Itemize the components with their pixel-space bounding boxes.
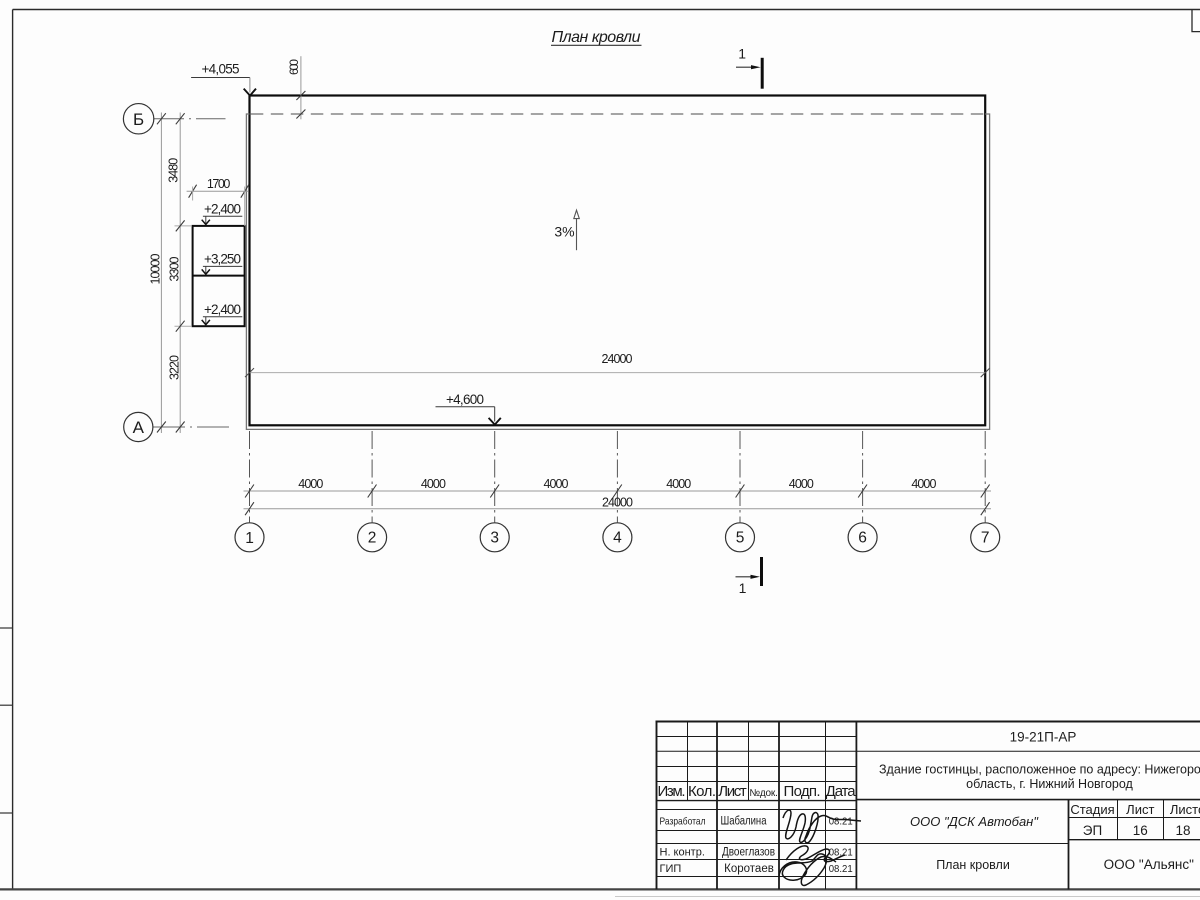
svg-text:Стадия: Стадия: [1070, 802, 1114, 817]
svg-text:18: 18: [1175, 823, 1190, 838]
svg-text:Б: Б: [133, 110, 144, 129]
svg-text:600: 600: [287, 59, 301, 75]
svg-text:Коротаев: Коротаев: [724, 863, 774, 875]
svg-text:+3,250: +3,250: [204, 252, 241, 267]
svg-text:ООО "Альянс": ООО "Альянс": [1104, 857, 1194, 872]
svg-text:4: 4: [613, 530, 622, 547]
svg-text:3480: 3480: [167, 158, 181, 183]
svg-text:2: 2: [368, 530, 377, 547]
svg-text:1: 1: [739, 580, 747, 596]
svg-text:08.21: 08.21: [829, 816, 853, 828]
svg-text:область, г. Нижний Новгород: область, г. Нижний Новгород: [966, 777, 1133, 791]
svg-text:1: 1: [738, 46, 746, 62]
svg-text:Н. контр.: Н. контр.: [660, 847, 705, 859]
svg-text:А: А: [133, 418, 145, 437]
svg-text:5: 5: [736, 530, 745, 547]
svg-text:3220: 3220: [168, 355, 182, 380]
svg-text:3: 3: [490, 530, 499, 547]
svg-text:Подп.: Подп.: [784, 783, 821, 800]
svg-text:1700: 1700: [207, 177, 231, 191]
svg-text:Разработал: Разработал: [660, 816, 706, 828]
svg-text:Листов: Листов: [1170, 802, 1200, 817]
svg-text:19-21П-АР: 19-21П-АР: [1010, 729, 1077, 744]
svg-text:+2,400: +2,400: [204, 302, 241, 317]
svg-text:План кровли: План кровли: [936, 858, 1010, 872]
svg-text:План кровли: План кровли: [552, 29, 641, 46]
svg-text:10000: 10000: [149, 253, 163, 284]
svg-text:4000: 4000: [544, 477, 569, 491]
svg-text:3%: 3%: [554, 223, 574, 239]
svg-text:1: 1: [245, 530, 254, 547]
svg-text:+4,055: +4,055: [202, 62, 240, 77]
svg-text:Двоеглазов: Двоеглазов: [722, 847, 775, 859]
svg-text:24000: 24000: [602, 352, 633, 366]
svg-text:№док.: №док.: [749, 788, 778, 799]
svg-text:16: 16: [1133, 823, 1148, 838]
svg-text:3300: 3300: [168, 256, 182, 281]
svg-text:4000: 4000: [666, 477, 691, 491]
svg-text:ГИП: ГИП: [660, 863, 682, 875]
svg-text:Кол.: Кол.: [688, 783, 716, 800]
svg-text:4000: 4000: [911, 477, 936, 491]
svg-text:+4,600: +4,600: [446, 392, 484, 407]
svg-text:+2,400: +2,400: [204, 202, 241, 217]
svg-text:Лист: Лист: [1126, 802, 1154, 817]
svg-text:Изм.: Изм.: [658, 783, 686, 800]
svg-text:Шабалина: Шабалина: [721, 816, 767, 828]
svg-text:7: 7: [981, 530, 990, 547]
svg-text:ООО "ДСК Автобан": ООО "ДСК Автобан": [910, 814, 1039, 829]
svg-text:Дата: Дата: [826, 783, 857, 800]
svg-text:ЭП: ЭП: [1083, 823, 1102, 838]
svg-text:Лист: Лист: [718, 783, 747, 800]
svg-text:24000: 24000: [602, 496, 633, 510]
svg-text:Здание гостинцы, расположенное: Здание гостинцы, расположенное по адресу…: [879, 763, 1200, 777]
svg-text:4000: 4000: [421, 477, 446, 491]
svg-text:4000: 4000: [789, 477, 814, 491]
svg-text:08.21: 08.21: [829, 863, 853, 875]
svg-text:6: 6: [858, 530, 867, 547]
svg-text:4000: 4000: [298, 477, 323, 491]
